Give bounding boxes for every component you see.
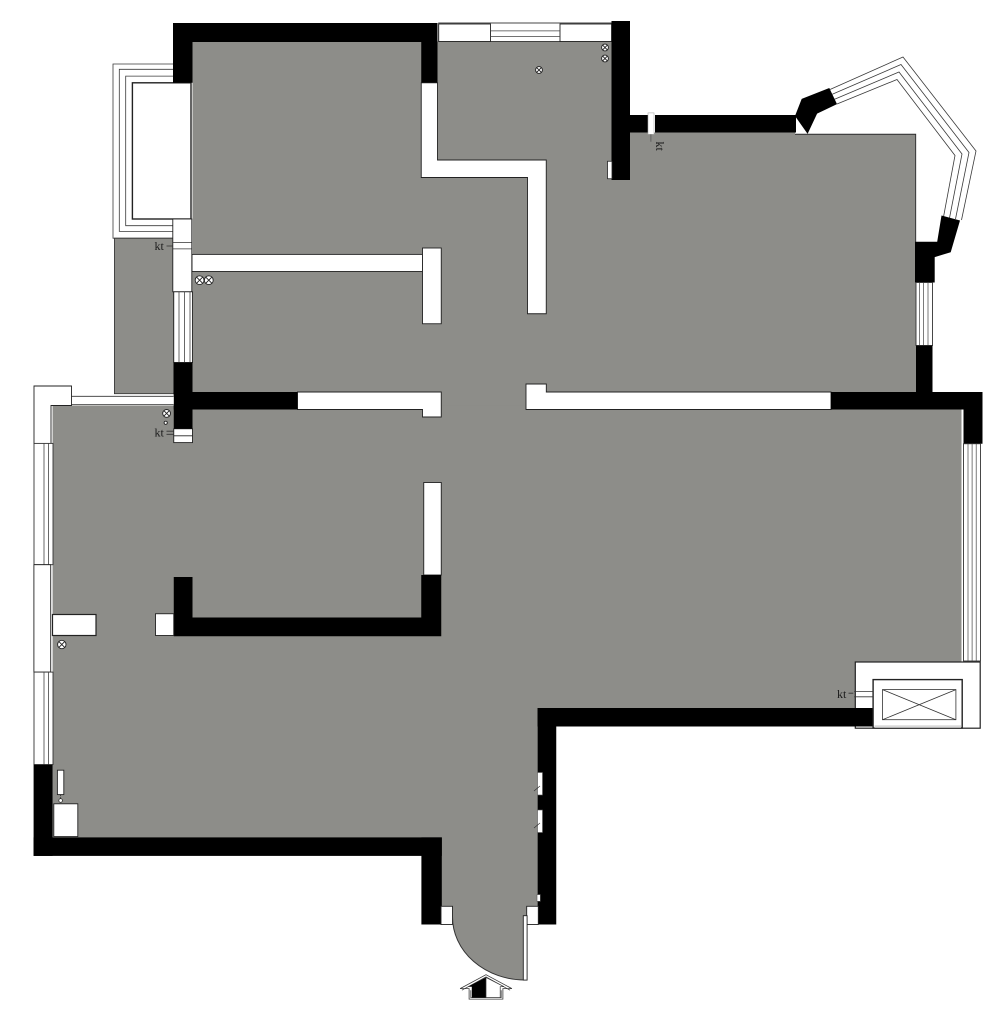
svg-text:kt: kt <box>155 426 165 440</box>
svg-text:kt: kt <box>837 687 847 701</box>
svg-text:kt: kt <box>155 239 165 253</box>
svg-text:kt: kt <box>653 142 667 152</box>
